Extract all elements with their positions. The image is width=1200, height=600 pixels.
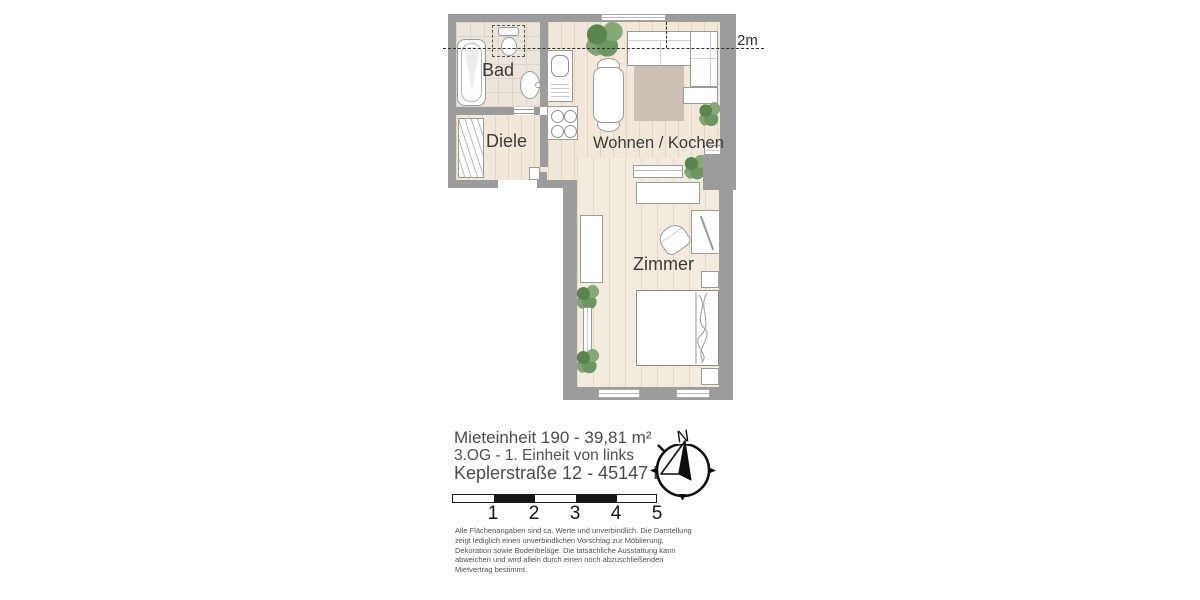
compass-tick-east [708,467,716,474]
dining-table [593,67,624,123]
floor-plan-page: 2m Bad Diele Wohnen / Kochen Zimmer Miet… [0,0,1200,600]
stove-burner [551,125,564,138]
room-label-wohnen: Wohnen / Kochen [593,134,724,153]
room-label-bad: Bad [482,60,514,81]
bed [636,290,719,366]
room-label-diele: Diele [486,131,527,152]
wall [448,14,736,22]
door-leaf [529,167,540,180]
scale-tick-label: 3 [570,503,581,525]
nightstand [701,368,719,385]
wall [448,14,456,188]
scale-tick-label: 1 [488,503,499,525]
sofa-right-section [690,31,718,87]
compass-tick-northwest [658,445,664,451]
wall [448,180,498,188]
stove [547,106,578,140]
wall [719,185,733,400]
scale-tick-label: 5 [652,503,663,525]
room-label-zimmer: Zimmer [633,254,694,275]
diele-wardrobe [458,118,484,178]
stove-burner [564,110,577,123]
window [676,389,710,398]
dresser [636,182,700,204]
kitchen-sink-basin [551,55,569,77]
kitchen-sink-unit [547,50,573,102]
plant [583,20,627,58]
wall [563,183,577,400]
window [601,14,666,21]
kitchen-sink-drainer [551,81,569,97]
plant [575,347,601,375]
plant [698,100,722,128]
compass-tick-west [650,467,658,474]
wall [540,22,548,107]
height-line-vertical [666,22,667,48]
disclaimer-text: Alle Flächenangaben sind ca. Werte und u… [455,526,721,575]
compass: N [645,424,721,500]
compass-north-label: N [676,426,691,447]
wall [456,107,514,115]
bed-duvet-folds [637,291,718,365]
tall-cabinet [580,215,603,283]
wall [540,115,548,167]
door-leaf [513,109,535,114]
scale-tick-label: 2 [529,503,540,525]
toilet-clearance-box [492,25,525,57]
unit-title: Mieteinheit 190 - 39,81 m² [454,428,652,448]
scale-bar [452,494,657,503]
nightstand [701,271,719,288]
toilet-tank [498,27,519,36]
stove-burner [551,110,564,123]
stove-burner [564,125,577,138]
rug [634,64,684,121]
scale-bar-segment [576,495,617,502]
sideboard [633,165,683,178]
bathtub-water-triangle [464,47,480,91]
toilet-bowl [501,37,517,56]
scale-bar-segment [494,495,535,502]
window [598,389,640,398]
wardrobe-diagonal [700,216,714,250]
wardrobe [691,210,721,254]
height-line-horizontal [443,48,764,49]
scale-tick-label: 4 [611,503,622,525]
height-line-label: 2m [737,32,758,49]
